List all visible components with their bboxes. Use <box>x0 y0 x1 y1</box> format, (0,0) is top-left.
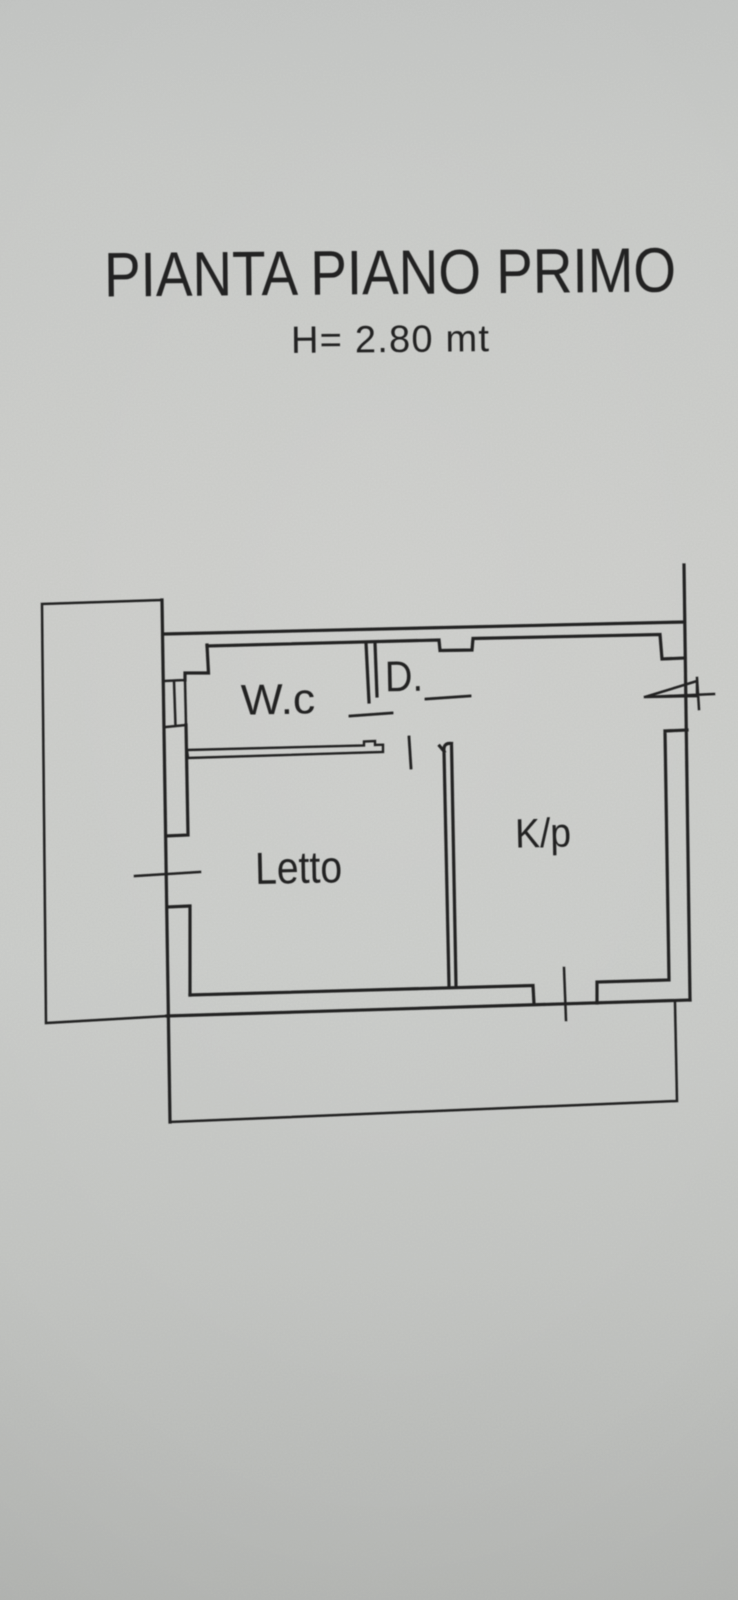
svg-text:PIANTA PIANO PRIMO: PIANTA PIANO PRIMO <box>104 236 677 311</box>
svg-text:D.: D. <box>384 653 423 702</box>
svg-text:K/p: K/p <box>515 809 572 856</box>
svg-text:W.c: W.c <box>241 675 316 725</box>
svg-text:H= 2.80 mt: H= 2.80 mt <box>291 318 490 362</box>
svg-text:Letto: Letto <box>254 841 342 894</box>
